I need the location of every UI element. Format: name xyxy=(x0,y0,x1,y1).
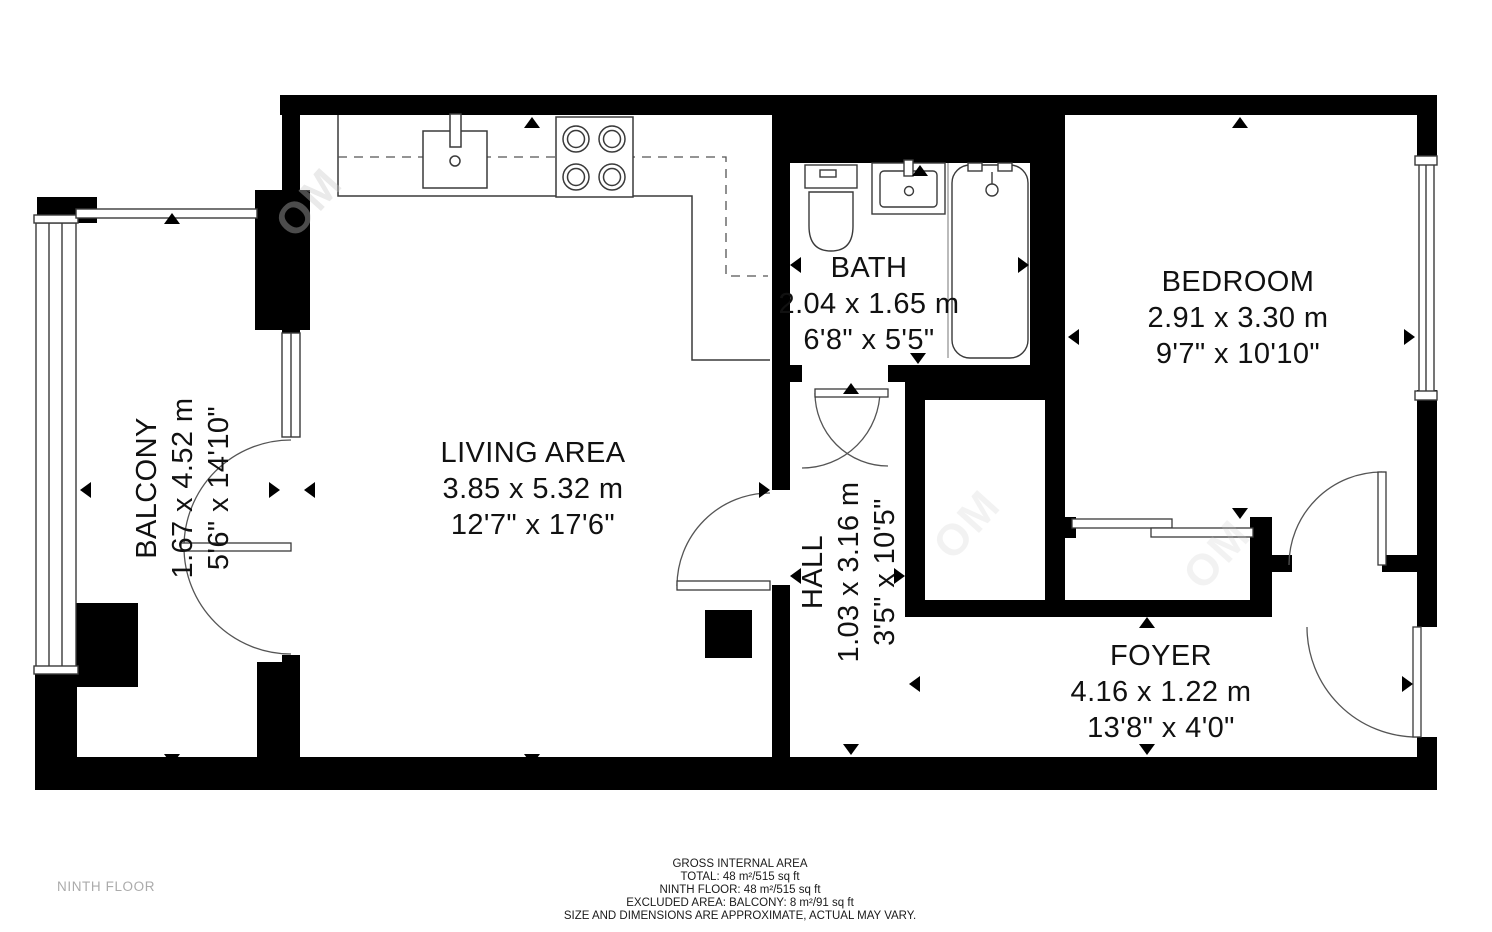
room-name: HALL xyxy=(795,482,831,663)
room-dim-metric: 3.85 x 5.32 m xyxy=(441,471,626,507)
room-dim-metric: 1.67 x 4.52 m xyxy=(165,398,201,579)
arrow-balcony-right xyxy=(269,482,280,498)
room-dim-imperial: 3'5" x 10'5" xyxy=(867,482,903,663)
room-dim-imperial: 9'7" x 10'10" xyxy=(1148,336,1329,372)
room-dim-metric: 4.16 x 1.22 m xyxy=(1071,674,1252,710)
bathroom-sink-icon xyxy=(872,160,945,214)
room-dim-imperial: 13'8" x 4'0" xyxy=(1071,710,1252,746)
room-label-bath: BATH 2.04 x 1.65 m 6'8" x 5'5" xyxy=(779,250,960,358)
arrow-bedroom-right xyxy=(1404,329,1415,345)
floorplan-page: OM OM OM LIVING AREA 3.85 x 5.32 m 12'7"… xyxy=(0,0,1492,932)
room-dim-imperial: 5'6" x 14'10" xyxy=(201,398,237,579)
room-name: LIVING AREA xyxy=(441,435,626,471)
wardrobe-sliding-door xyxy=(1072,519,1253,537)
room-name: BEDROOM xyxy=(1148,264,1329,300)
summary-total: TOTAL: 48 m²/515 sq ft xyxy=(564,871,916,884)
kitchen-counter xyxy=(338,115,770,360)
floor-label: NINTH FLOOR xyxy=(57,879,155,894)
bedroom-door xyxy=(1289,472,1386,565)
arrow-bedroom-up xyxy=(1232,117,1248,128)
bathtub-icon xyxy=(948,163,1028,358)
area-summary: GROSS INTERNAL AREA TOTAL: 48 m²/515 sq … xyxy=(564,858,916,923)
summary-title: GROSS INTERNAL AREA xyxy=(564,858,916,871)
arrow-foyer-right xyxy=(1402,676,1413,692)
arrow-living-left xyxy=(304,482,315,498)
summary-floor: NINTH FLOOR: 48 m²/515 sq ft xyxy=(564,884,916,897)
room-dim-metric: 2.91 x 3.30 m xyxy=(1148,300,1329,336)
arrow-hall-down xyxy=(843,744,859,755)
bedroom-window xyxy=(1415,156,1437,400)
room-label-living: LIVING AREA 3.85 x 5.32 m 12'7" x 17'6" xyxy=(441,435,626,543)
summary-disclaimer: SIZE AND DIMENSIONS ARE APPROXIMATE, ACT… xyxy=(564,910,916,923)
room-name: BATH xyxy=(779,250,960,286)
living-door xyxy=(677,493,770,590)
room-dim-imperial: 12'7" x 17'6" xyxy=(441,507,626,543)
stove-icon xyxy=(556,117,633,197)
room-name: BALCONY xyxy=(129,398,165,579)
kitchen-sink-icon xyxy=(423,114,487,188)
room-label-bedroom: BEDROOM 2.91 x 3.30 m 9'7" x 10'10" xyxy=(1148,264,1329,372)
arrow-living-up xyxy=(524,117,540,128)
column xyxy=(705,610,752,658)
living-balcony-window xyxy=(282,333,300,437)
room-label-foyer: FOYER 4.16 x 1.22 m 13'8" x 4'0" xyxy=(1071,638,1252,746)
arrow-bedroom-down xyxy=(1232,508,1248,519)
arrow-foyer-left xyxy=(909,676,920,692)
kitchen xyxy=(338,114,770,360)
arrow-bedroom-left xyxy=(1068,329,1079,345)
room-dim-imperial: 6'8" x 5'5" xyxy=(779,322,960,358)
room-label-hall: HALL 1.03 x 3.16 m 3'5" x 10'5" xyxy=(795,482,903,663)
room-name: FOYER xyxy=(1071,638,1252,674)
balcony-rail xyxy=(34,215,78,674)
arrow-balcony-left xyxy=(80,482,91,498)
bath-door xyxy=(802,389,888,468)
toilet-icon xyxy=(805,165,857,251)
windows xyxy=(34,156,1437,674)
arrow-living-right xyxy=(759,482,770,498)
kitchen-cabinet-dashed xyxy=(338,157,768,276)
balcony-top-edge xyxy=(76,209,257,218)
summary-excluded: EXCLUDED AREA: BALCONY: 8 m²/91 sq ft xyxy=(564,897,916,910)
room-dim-metric: 1.03 x 3.16 m xyxy=(831,482,867,663)
room-dim-metric: 2.04 x 1.65 m xyxy=(779,286,960,322)
arrow-foyer-up xyxy=(1139,617,1155,628)
room-label-balcony: BALCONY 1.67 x 4.52 m 5'6" x 14'10" xyxy=(129,398,237,579)
